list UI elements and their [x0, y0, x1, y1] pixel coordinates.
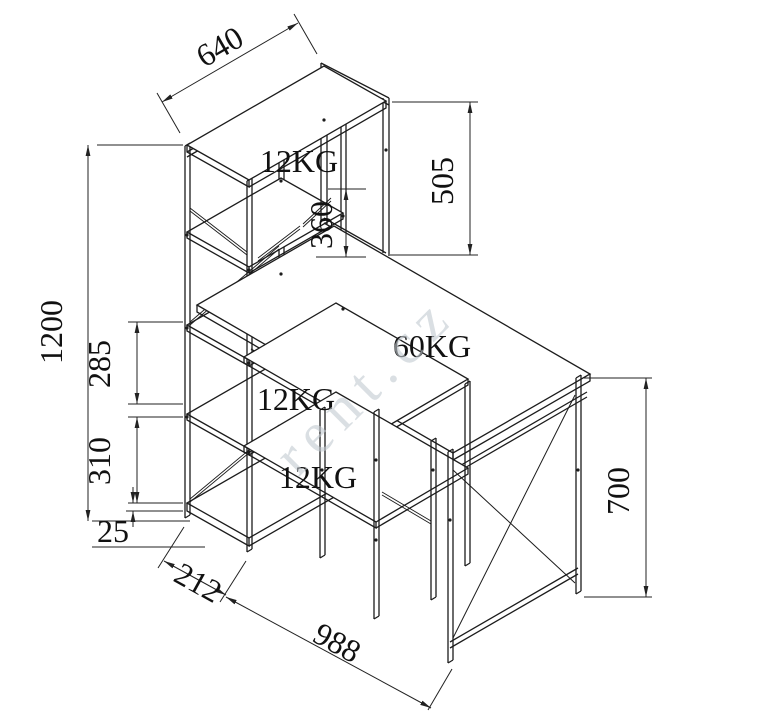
dim-upper-shelf-gap: 285 [81, 340, 117, 388]
dim-tower-depth: 212 [169, 555, 228, 610]
load-top-shelf: 12KG [260, 143, 338, 179]
dim-base-rail-height: 25 [97, 513, 129, 549]
technical-drawing: 640 505 360 1200 285 310 25 212 988 700 … [0, 0, 784, 724]
dim-desk-height: 700 [600, 467, 636, 515]
dim-lower-shelf-gap: 310 [81, 437, 117, 485]
dim-hutch-frame-height: 505 [424, 157, 460, 205]
drawing-canvas: 640 505 360 1200 285 310 25 212 988 700 … [0, 0, 784, 724]
dim-total-height: 1200 [33, 300, 69, 364]
dim-top-shelf-width: 640 [190, 19, 250, 74]
dim-hutch-clearance: 360 [303, 201, 339, 249]
dim-desk-length: 988 [308, 615, 367, 670]
